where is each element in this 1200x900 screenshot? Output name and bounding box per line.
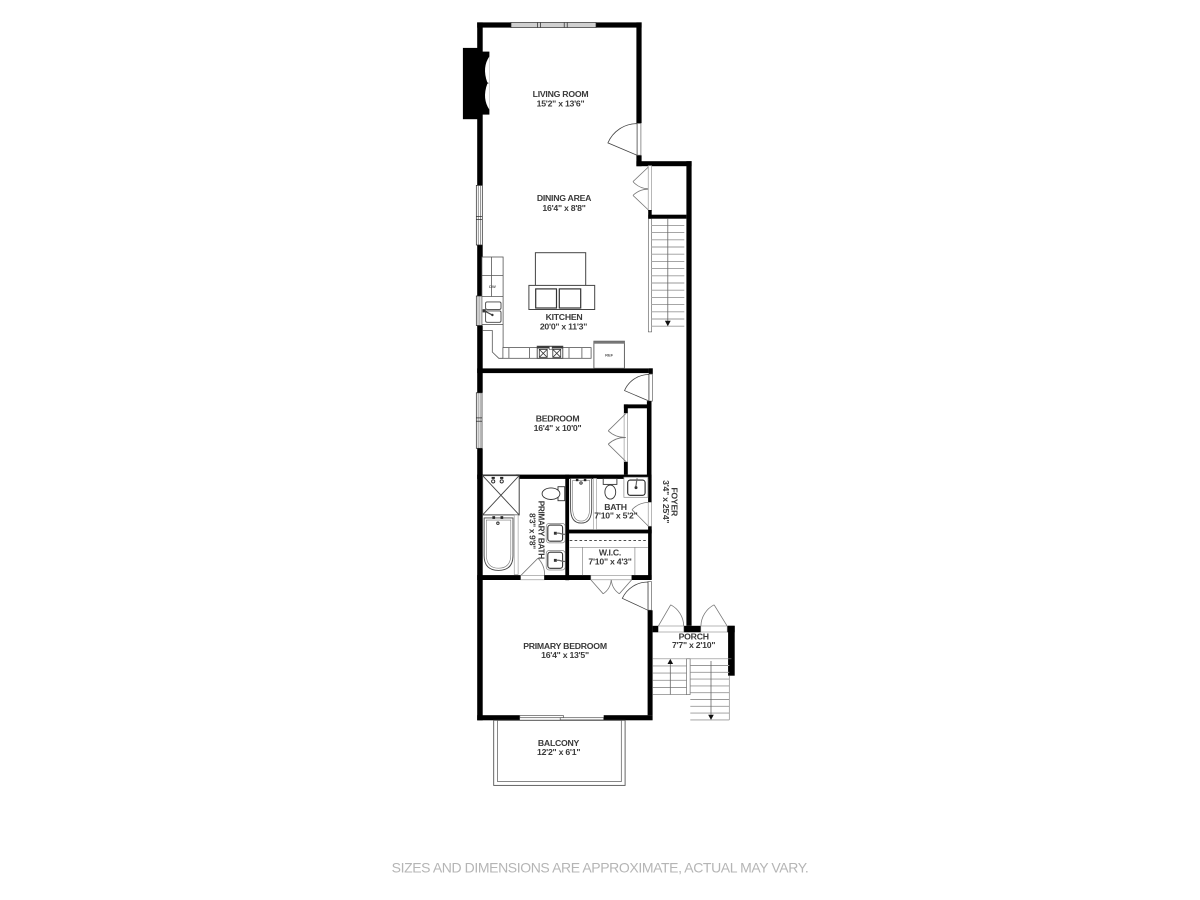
svg-text:REF: REF [605, 352, 614, 357]
svg-text:3'4" x 25'4": 3'4" x 25'4" [661, 480, 671, 523]
svg-text:7'10" x 4'3": 7'10" x 4'3" [588, 557, 631, 567]
svg-text:16'4" x 8'8": 16'4" x 8'8" [542, 203, 585, 213]
svg-text:12'2" x 6'1": 12'2" x 6'1" [537, 747, 580, 757]
svg-text:7'7" x 2'10": 7'7" x 2'10" [672, 640, 715, 650]
svg-text:7'10" x 5'2": 7'10" x 5'2" [594, 511, 637, 521]
svg-text:BEDROOM: BEDROOM [536, 414, 580, 424]
svg-text:LIVING ROOM: LIVING ROOM [533, 89, 589, 99]
svg-text:15'2" x 13'6": 15'2" x 13'6" [537, 99, 585, 109]
svg-text:16'4" x 10'0": 16'4" x 10'0" [534, 423, 582, 433]
svg-text:DW: DW [489, 284, 496, 289]
svg-text:8'3" x 9'8": 8'3" x 9'8" [527, 513, 536, 549]
svg-text:PRIMARY BATH: PRIMARY BATH [536, 501, 545, 559]
svg-text:16'4" x 13'5": 16'4" x 13'5" [541, 650, 589, 660]
svg-text:SIZES AND DIMENSIONS ARE APPRO: SIZES AND DIMENSIONS ARE APPROXIMATE, AC… [392, 860, 809, 876]
svg-text:20'0" x 11'3": 20'0" x 11'3" [540, 322, 587, 332]
svg-text:DINING AREA: DINING AREA [537, 193, 592, 203]
svg-text:KITCHEN: KITCHEN [546, 312, 583, 322]
